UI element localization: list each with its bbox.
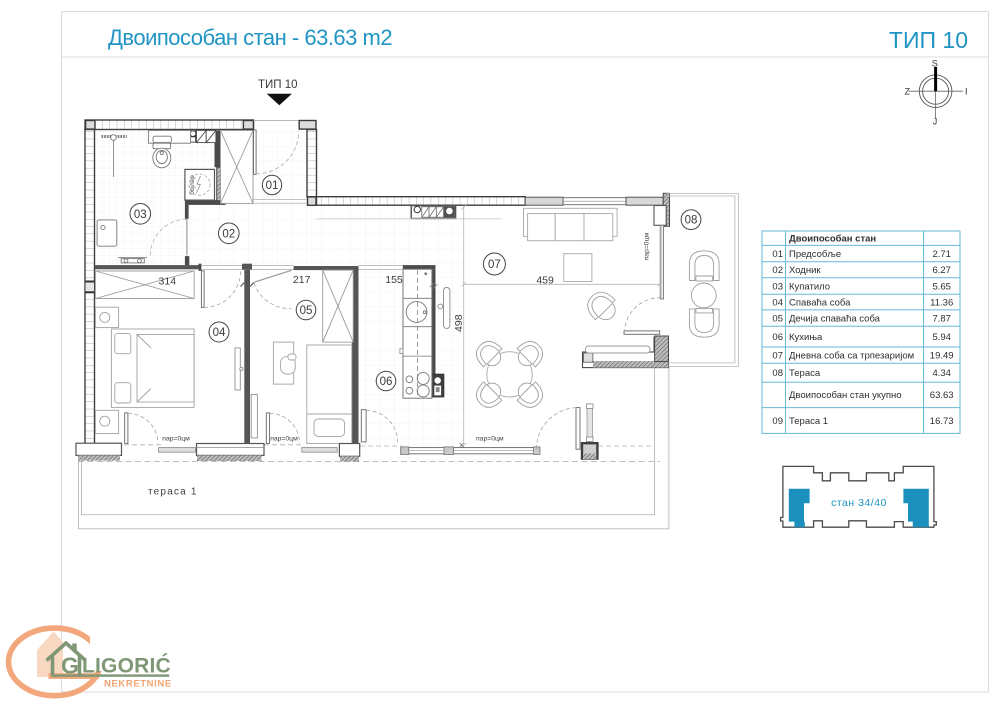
svg-text:04: 04	[772, 297, 783, 308]
svg-text:пар=0цм: пар=0цм	[644, 233, 651, 261]
svg-text:02: 02	[772, 265, 783, 276]
svg-text:01: 01	[266, 180, 279, 192]
svg-text:04: 04	[213, 327, 226, 339]
svg-text:стан 34/40: стан 34/40	[831, 497, 887, 509]
svg-text:09: 09	[772, 416, 783, 427]
svg-text:155: 155	[385, 274, 403, 286]
svg-text:05: 05	[300, 305, 313, 317]
svg-text:07: 07	[772, 350, 783, 361]
svg-text:S: S	[932, 59, 938, 69]
svg-text:*: *	[424, 271, 428, 281]
svg-text:Двоипособан стан - 63.63 m2: Двоипособан стан - 63.63 m2	[108, 25, 392, 50]
svg-text:пар=0цм: пар=0цм	[270, 435, 298, 442]
svg-text:08: 08	[772, 368, 783, 379]
svg-text:16.73: 16.73	[930, 416, 954, 427]
svg-text:5.65: 5.65	[932, 281, 951, 292]
svg-text:ТИП 10: ТИП 10	[258, 79, 298, 91]
svg-text:5.94: 5.94	[932, 332, 951, 343]
svg-text:06: 06	[380, 376, 393, 388]
svg-text:LIGORIĆ: LIGORIĆ	[82, 654, 171, 678]
svg-text:19.49: 19.49	[930, 350, 954, 361]
svg-text:11.36: 11.36	[930, 297, 953, 308]
svg-text:4.34: 4.34	[932, 368, 951, 379]
svg-text:08: 08	[685, 215, 698, 227]
svg-text:2.71: 2.71	[932, 249, 951, 260]
svg-text:J: J	[933, 117, 938, 127]
svg-text:02: 02	[222, 228, 235, 240]
svg-text:03: 03	[134, 209, 147, 221]
svg-text:Тераса: Тераса	[789, 368, 821, 379]
svg-text:Купатило: Купатило	[789, 281, 830, 292]
svg-text:01: 01	[772, 249, 783, 260]
svg-text:Дневна соба са трпезаријом: Дневна соба са трпезаријом	[789, 350, 914, 361]
svg-text:Спаваћа соба: Спаваћа соба	[789, 297, 851, 308]
svg-text:07: 07	[488, 259, 501, 271]
svg-text:Двоипособан стан: Двоипособан стан	[789, 234, 876, 245]
svg-text:459: 459	[536, 274, 554, 286]
svg-text:63.63: 63.63	[930, 390, 954, 401]
svg-text:06: 06	[772, 332, 783, 343]
svg-text:7.87: 7.87	[932, 313, 951, 324]
svg-text:Тераса 1: Тераса 1	[789, 416, 828, 427]
svg-text:Двоипособан стан укупно: Двоипособан стан укупно	[789, 390, 902, 401]
svg-text:314: 314	[159, 276, 177, 288]
svg-text:Z: Z	[905, 87, 911, 97]
svg-text:Кухиња: Кухиња	[789, 332, 823, 343]
svg-text:ТИП 10: ТИП 10	[889, 27, 968, 53]
svg-text:пар=0цм: пар=0цм	[476, 435, 504, 442]
svg-text:тераса 1: тераса 1	[148, 487, 198, 498]
svg-text:Ходник: Ходник	[789, 265, 821, 276]
svg-text:498: 498	[453, 314, 465, 332]
svg-text:NEKRETNINE: NEKRETNINE	[104, 679, 172, 690]
svg-text:05: 05	[772, 313, 783, 324]
svg-text:6.27: 6.27	[932, 265, 951, 276]
svg-text:Дечија спаваћа соба: Дечија спаваћа соба	[789, 313, 881, 324]
svg-text:пар=0цм: пар=0цм	[162, 435, 190, 442]
svg-text:217: 217	[293, 274, 311, 286]
svg-text:бојлер: бојлер	[188, 175, 196, 195]
svg-text:03: 03	[772, 281, 783, 292]
svg-text:I: I	[965, 87, 968, 97]
svg-text:Предсобље: Предсобље	[789, 249, 841, 260]
